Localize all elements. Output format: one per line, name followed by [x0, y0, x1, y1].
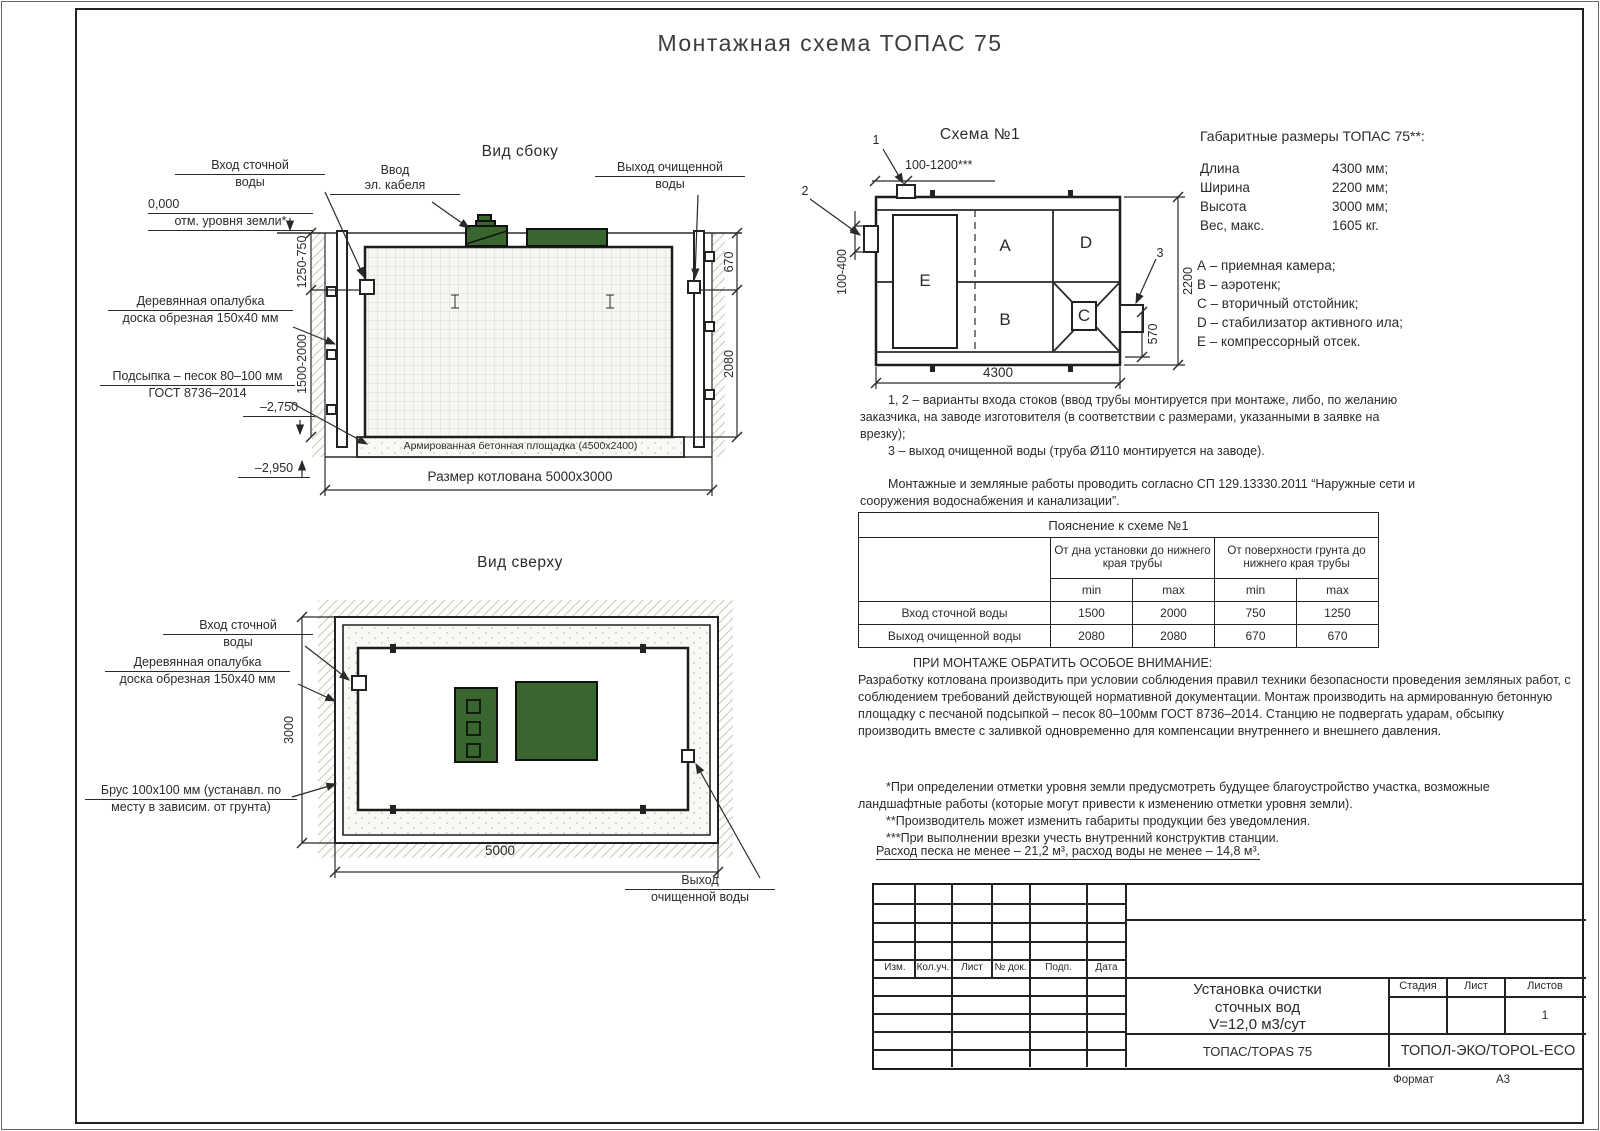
label-formwork-top: Деревянная опалубка доска обрезная 150х4… — [105, 655, 290, 687]
label-sand-bed: Подсыпка – песок 80–100 мм ГОСТ 8736–201… — [100, 369, 295, 401]
long-lid — [527, 229, 607, 246]
dim-1250-750: 1250-750 — [295, 236, 309, 289]
attention-body: Разработку котлована производить при усл… — [858, 672, 1572, 740]
legend-c: С – вторичный отстойник; — [1197, 296, 1358, 311]
label-mark-2950: –2,950 — [238, 461, 310, 478]
legend-d: D – стабилизатор активного ила; — [1197, 315, 1403, 330]
dim-2080-side: 2080 — [722, 350, 736, 378]
table-row: Вход сточной воды 1500 2000 750 1250 — [859, 602, 1379, 625]
rev-col-data: Дата — [1088, 962, 1125, 973]
dim-100-1200: 100-1200*** — [905, 158, 1015, 173]
dim-4300: 4300 — [958, 365, 1038, 380]
specs-title: Габаритные размеры ТОПАС 75**: — [1200, 128, 1425, 144]
compartment-b: В — [999, 310, 1010, 330]
note-sp: Монтажные и земляные работы проводить со… — [860, 476, 1425, 510]
compartment-d: D — [1080, 233, 1092, 253]
doc-name: Установка очистки сточных вод V=12,0 м3/… — [1127, 981, 1388, 1034]
spec-weight-value: 1605 кг. — [1332, 218, 1379, 233]
side-view-title: Вид сбоку — [420, 143, 620, 161]
model-name: ТОПАС/TOPAS 75 — [1127, 1044, 1388, 1059]
sheet-label: Лист — [1448, 980, 1504, 992]
label-inlet-side: Вход сточной воды — [175, 158, 325, 190]
label-outlet-side: Выход очищенной воды — [595, 160, 745, 192]
footnotes-block: *При определении отметки уровня земли пр… — [858, 779, 1572, 847]
label-pit-size: Размер котлована 5000х3000 — [330, 469, 710, 484]
format-value: А3 — [1496, 1074, 1510, 1086]
explanation-table: Пояснение к схеме №1 От дна установки до… — [858, 512, 1379, 648]
dim-100-400: 100-400 — [835, 249, 849, 295]
rev-col-izm: Изм. — [876, 962, 914, 973]
sheets-value: 1 — [1506, 1008, 1584, 1022]
label-outlet-top: Выход очищенной воды — [625, 873, 775, 905]
service-lid — [466, 226, 507, 246]
spec-width-value: 2200 мм; — [1332, 180, 1388, 195]
table-row: Выход очищенной воды 2080 2080 670 670 — [859, 625, 1379, 648]
compartment-a: А — [999, 236, 1010, 256]
spec-height-label: Высота — [1200, 199, 1246, 214]
rev-col-list: Лист — [953, 962, 991, 973]
brand-name: ТОПОЛ-ЭКО/TOPOL-ECO — [1390, 1043, 1586, 1059]
table-group2: От поверхности грунта до нижнего края тр… — [1215, 538, 1379, 579]
callout-3: 3 — [1150, 246, 1170, 261]
schema-title: Схема №1 — [900, 126, 1060, 144]
sheets-label: Листов — [1506, 980, 1584, 992]
note-variants: 1, 2 – варианты входа стоков (ввод трубы… — [860, 392, 1425, 460]
consumption-note: Расход песка не менее – 21,2 м³, расход … — [876, 843, 1576, 860]
spec-width-label: Ширина — [1200, 180, 1250, 195]
spec-length-label: Длина — [1200, 161, 1240, 176]
attention-block: ПРИ МОНТАЖЕ ОБРАТИТЬ ОСОБОЕ ВНИМАНИЕ: Ра… — [858, 655, 1572, 740]
spec-height-value: 3000 мм; — [1332, 199, 1388, 214]
compartment-c: С — [1078, 306, 1090, 326]
spec-weight-label: Вес, макс. — [1200, 218, 1264, 233]
stage-label: Стадия — [1390, 980, 1446, 992]
label-inlet-top: Вход сточной воды — [163, 618, 313, 650]
dim-570: 570 — [1146, 324, 1160, 345]
label-ground-level: 0,000 отм. уровня земли* — [148, 197, 313, 231]
dim-670-side: 670 — [722, 252, 736, 273]
label-brus: Брус 100х100 мм (устанавл. по месту в за… — [85, 783, 297, 815]
dim-1500-2000: 1500-2000 — [295, 334, 309, 394]
legend-b: В – аэротенк; — [1197, 277, 1281, 292]
dim-3000: 3000 — [282, 716, 296, 744]
label-cable-entry: Ввод эл. кабеля — [330, 163, 460, 195]
drawing-sheet: Монтажная схема ТОПАС 75 — [0, 0, 1600, 1131]
attention-title: ПРИ МОНТАЖЕ ОБРАТИТЬ ОСОБОЕ ВНИМАНИЕ: — [858, 655, 1572, 672]
top-view-title: Вид сверху — [420, 554, 620, 572]
tank-body — [365, 247, 672, 437]
service-hatch — [516, 682, 597, 760]
dim-2200: 2200 — [1181, 267, 1195, 295]
compartment-e: Е — [919, 271, 930, 291]
table-group1: От дна установки до нижнего края трубы — [1051, 538, 1215, 579]
schema-drawing — [790, 135, 1220, 395]
format-label: Формат — [1393, 1074, 1434, 1086]
rev-col-podp: Подп. — [1031, 962, 1086, 973]
rev-col-koluch: Кол.уч. — [915, 962, 951, 973]
table-title: Пояснение к схеме №1 — [859, 513, 1379, 538]
label-formwork-side: Деревянная опалубка доска обрезная 150х4… — [108, 294, 293, 326]
label-mark-2750: –2,750 — [243, 400, 315, 417]
callout-1: 1 — [866, 133, 886, 148]
legend-a: А – приемная камера; — [1197, 258, 1335, 273]
callout-2: 2 — [795, 184, 815, 199]
dim-5000: 5000 — [430, 843, 570, 858]
title-block: Изм. Кол.уч. Лист № док. Подп. Дата Уста… — [872, 883, 1584, 1070]
page-title: Монтажная схема ТОПАС 75 — [500, 30, 1160, 57]
rev-col-ndok: № док. — [992, 962, 1029, 973]
label-concrete-pad: Армированная бетонная площадка (4500х240… — [357, 440, 684, 452]
spec-length-value: 4300 мм; — [1332, 161, 1388, 176]
legend-e: Е – компрессорный отсек. — [1197, 334, 1360, 349]
